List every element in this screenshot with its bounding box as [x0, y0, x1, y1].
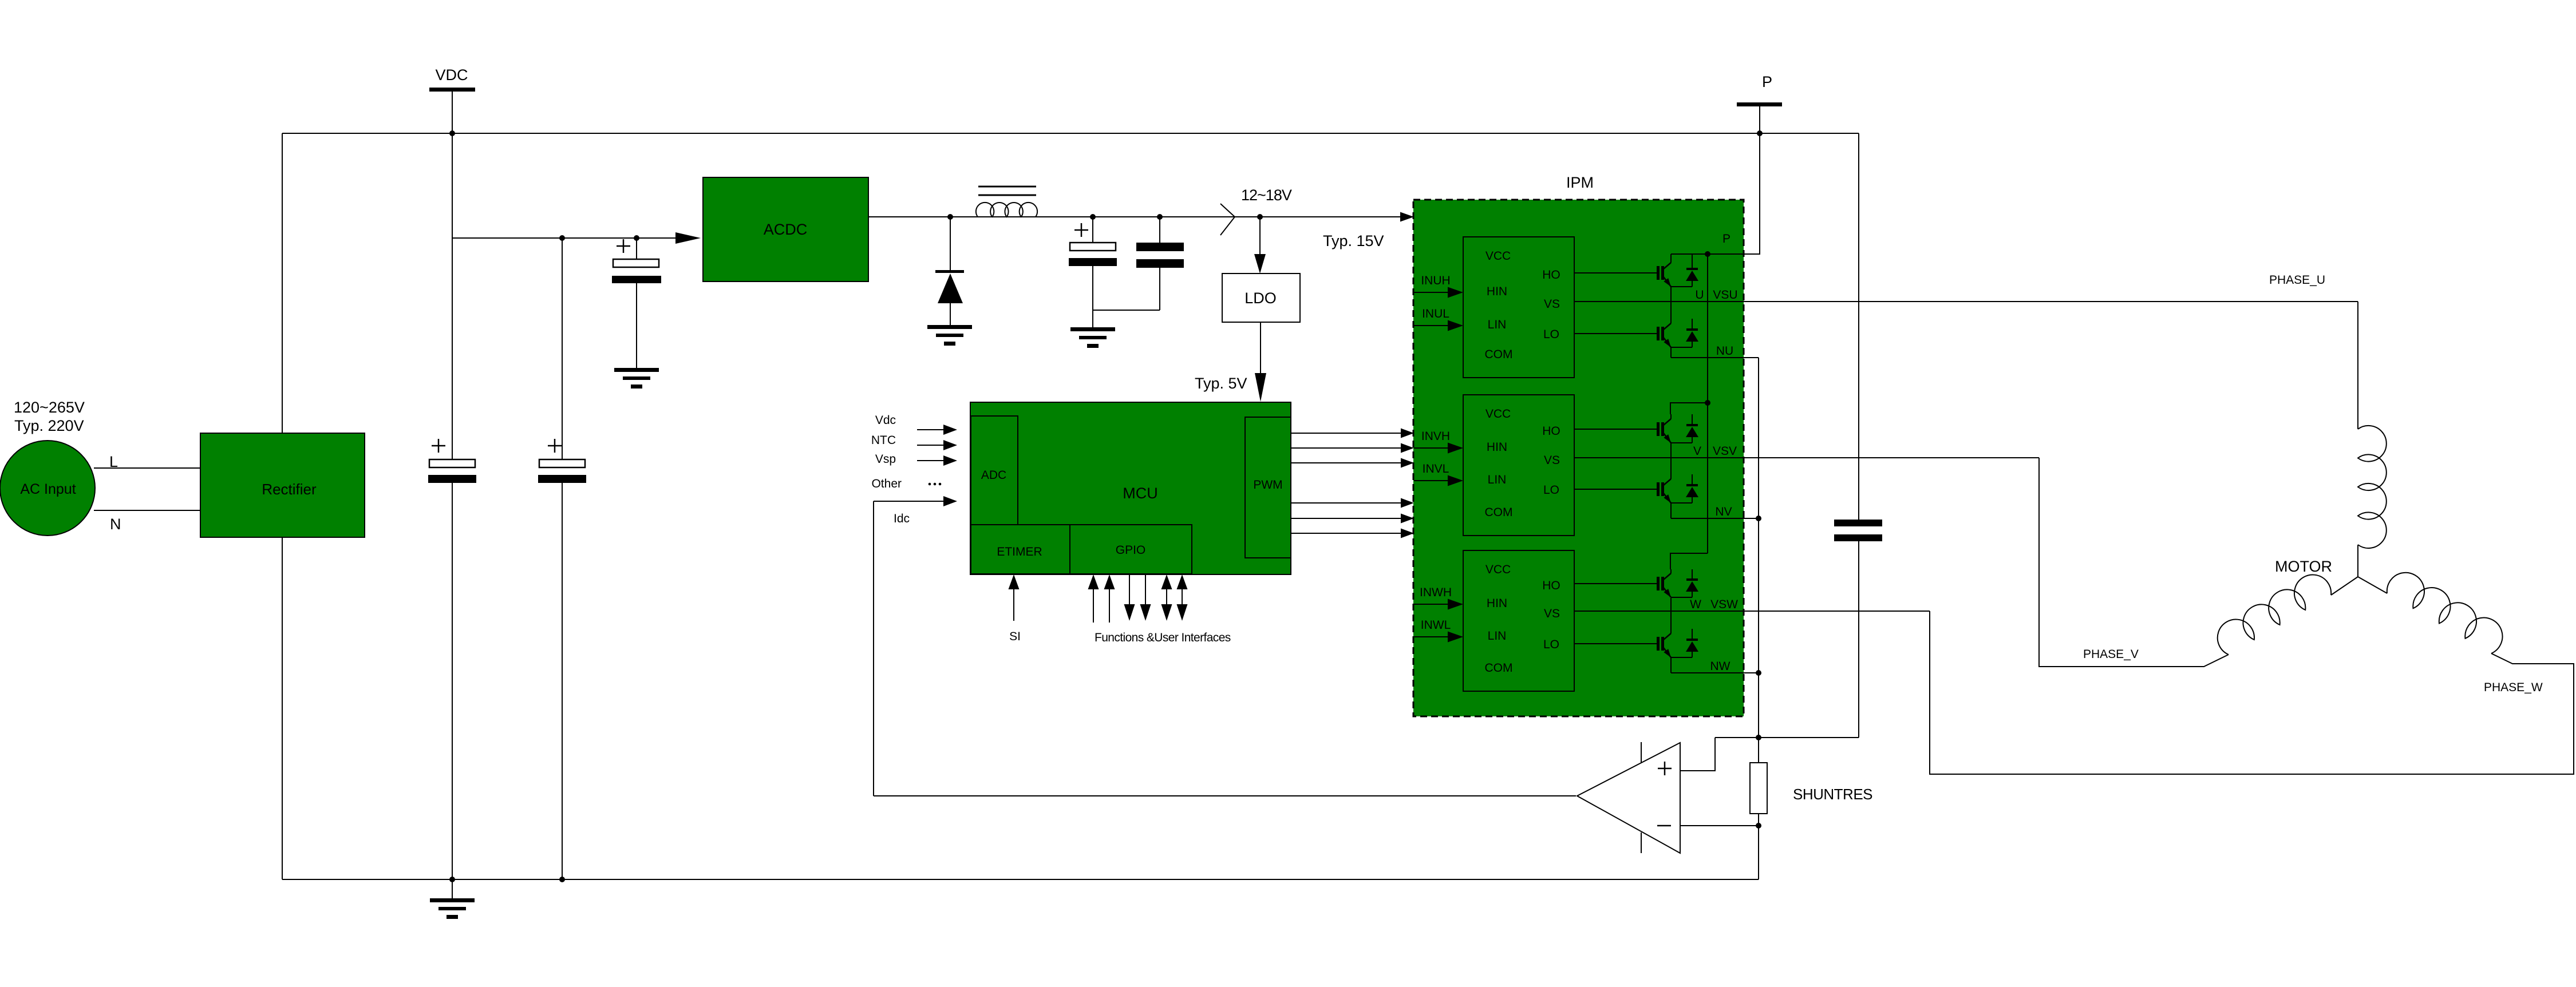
svg-text:Idc: Idc	[894, 512, 910, 525]
svg-text:PWM: PWM	[1253, 478, 1282, 491]
svg-text:LIN: LIN	[1488, 629, 1507, 643]
svg-text:VS: VS	[1544, 607, 1560, 620]
svg-text:P: P	[1762, 73, 1772, 90]
svg-text:VCC: VCC	[1485, 407, 1511, 421]
svg-text:NW: NW	[1710, 660, 1730, 673]
svg-text:NTC: NTC	[871, 434, 896, 447]
svg-text:SHUNTRES: SHUNTRES	[1793, 786, 1872, 803]
svg-text:LDO: LDO	[1244, 290, 1277, 307]
svg-text:LO: LO	[1543, 328, 1559, 341]
svg-text:HIN: HIN	[1487, 285, 1507, 298]
svg-text:VSV: VSV	[1713, 445, 1737, 458]
svg-text:V: V	[1693, 445, 1701, 458]
svg-text:VS: VS	[1544, 298, 1560, 311]
svg-text:VCC: VCC	[1485, 563, 1511, 576]
svg-text:HO: HO	[1542, 425, 1560, 438]
svg-text:Vdc: Vdc	[875, 414, 896, 427]
svg-text:HO: HO	[1542, 268, 1560, 282]
svg-text:INUH: INUH	[1421, 274, 1450, 287]
svg-text:ACDC: ACDC	[764, 221, 808, 238]
svg-text:ETIMER: ETIMER	[997, 545, 1042, 558]
svg-text:IPM: IPM	[1566, 174, 1594, 191]
svg-text:INWH: INWH	[1420, 586, 1452, 599]
svg-text:U: U	[1695, 288, 1704, 302]
svg-text:Vsp: Vsp	[875, 453, 896, 466]
svg-text:Typ. 5V: Typ. 5V	[1195, 375, 1247, 392]
svg-text:COM: COM	[1485, 506, 1513, 519]
svg-text:INWL: INWL	[1421, 619, 1451, 632]
svg-text:HO: HO	[1542, 579, 1560, 592]
svg-text:N: N	[110, 516, 121, 533]
svg-text:VSU: VSU	[1713, 288, 1737, 302]
svg-text:PHASE_W: PHASE_W	[2484, 681, 2543, 694]
svg-text:INVH: INVH	[1421, 430, 1450, 443]
svg-text:Functions &User Interfaces: Functions &User Interfaces	[1095, 631, 1231, 644]
svg-text:LO: LO	[1543, 638, 1559, 651]
svg-text:HIN: HIN	[1487, 597, 1507, 610]
svg-text:NV: NV	[1715, 505, 1732, 518]
svg-text:L: L	[109, 453, 118, 470]
svg-text:MCU: MCU	[1123, 485, 1158, 502]
svg-text:VDC: VDC	[435, 66, 468, 84]
svg-text:PHASE_V: PHASE_V	[2083, 648, 2139, 661]
svg-text:ADC: ADC	[981, 469, 1006, 482]
svg-text:VSW: VSW	[1710, 598, 1738, 611]
svg-text:VCC: VCC	[1485, 249, 1511, 263]
svg-text:W: W	[1690, 598, 1701, 611]
svg-text:P: P	[1722, 232, 1730, 245]
svg-text:LO: LO	[1543, 483, 1559, 497]
svg-text:MOTOR: MOTOR	[2275, 558, 2332, 575]
svg-text:AC Input: AC Input	[20, 481, 76, 497]
svg-text:Rectifier: Rectifier	[262, 481, 317, 498]
svg-text:Other: Other	[871, 477, 902, 490]
svg-text:COM: COM	[1485, 661, 1513, 675]
svg-text:Typ. 220V: Typ. 220V	[14, 417, 84, 434]
svg-text:120~265V: 120~265V	[14, 399, 85, 416]
svg-text:NU: NU	[1716, 344, 1733, 358]
svg-text:12~18V: 12~18V	[1241, 187, 1292, 204]
svg-text:PHASE_U: PHASE_U	[2269, 273, 2325, 287]
svg-text:INUL: INUL	[1422, 307, 1449, 320]
svg-text:COM: COM	[1485, 348, 1513, 361]
svg-text:HIN: HIN	[1487, 441, 1507, 454]
svg-text:LIN: LIN	[1488, 318, 1507, 331]
svg-text:Typ. 15V: Typ. 15V	[1323, 232, 1384, 249]
svg-text:VS: VS	[1544, 454, 1560, 467]
svg-text:GPIO: GPIO	[1116, 544, 1146, 557]
svg-text:INVL: INVL	[1423, 462, 1449, 475]
svg-text:LIN: LIN	[1488, 473, 1507, 486]
svg-text:SI: SI	[1009, 630, 1021, 643]
